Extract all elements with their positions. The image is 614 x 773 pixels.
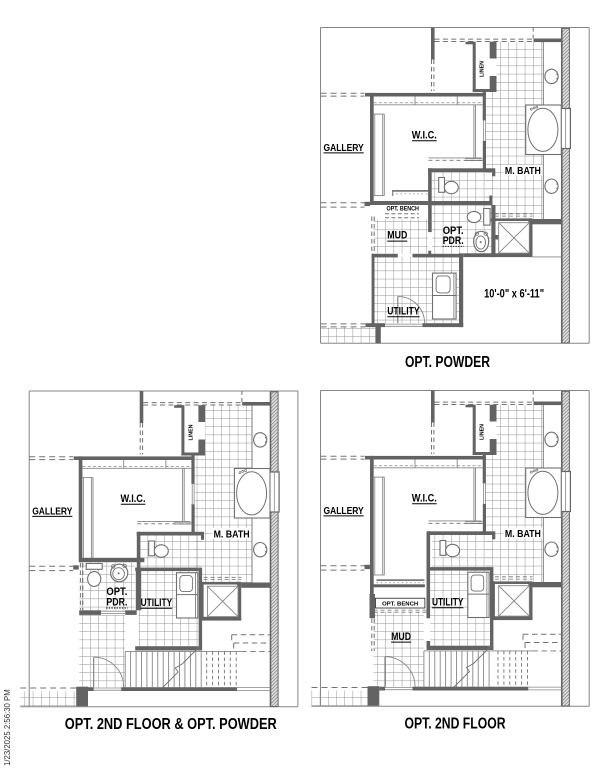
svg-text:UTILITY: UTILITY: [432, 597, 464, 609]
svg-text:OPT. 2ND FLOOR & OPT. POWDER: OPT. 2ND FLOOR & OPT. POWDER: [65, 716, 277, 733]
svg-text:OPT. POWDER: OPT. POWDER: [405, 354, 490, 371]
svg-text:UTILITY: UTILITY: [387, 305, 420, 317]
svg-text:MUD: MUD: [387, 230, 407, 242]
svg-text:OPT. BENCH: OPT. BENCH: [386, 206, 419, 213]
svg-text:1/23/2025 2:56:30 PM: 1/23/2025 2:56:30 PM: [3, 689, 12, 766]
svg-text:GALLERY: GALLERY: [324, 506, 364, 517]
svg-text:M. BATH: M. BATH: [214, 529, 250, 540]
svg-text:LINEN: LINEN: [480, 424, 486, 440]
svg-text:GALLERY: GALLERY: [324, 143, 364, 154]
svg-text:PDR.: PDR.: [443, 235, 464, 247]
svg-text:UTILITY: UTILITY: [141, 597, 173, 609]
svg-text:LINEN: LINEN: [480, 61, 486, 77]
svg-text:M. BATH: M. BATH: [505, 529, 541, 540]
svg-text:GALLERY: GALLERY: [32, 506, 72, 517]
svg-text:M. BATH: M. BATH: [505, 166, 541, 177]
svg-text:10'-0" x 6'-11": 10'-0" x 6'-11": [484, 287, 544, 301]
svg-text:W.I.C.: W.I.C.: [412, 492, 437, 504]
svg-text:W.I.C.: W.I.C.: [121, 493, 146, 505]
svg-text:W.I.C.: W.I.C.: [412, 129, 437, 141]
svg-text:PDR.: PDR.: [106, 597, 127, 609]
svg-text:MUD: MUD: [391, 631, 411, 643]
svg-text:LINEN: LINEN: [188, 424, 194, 440]
svg-text:OPT. BENCH: OPT. BENCH: [382, 602, 418, 608]
svg-text:OPT. 2ND FLOOR: OPT. 2ND FLOOR: [405, 716, 506, 733]
